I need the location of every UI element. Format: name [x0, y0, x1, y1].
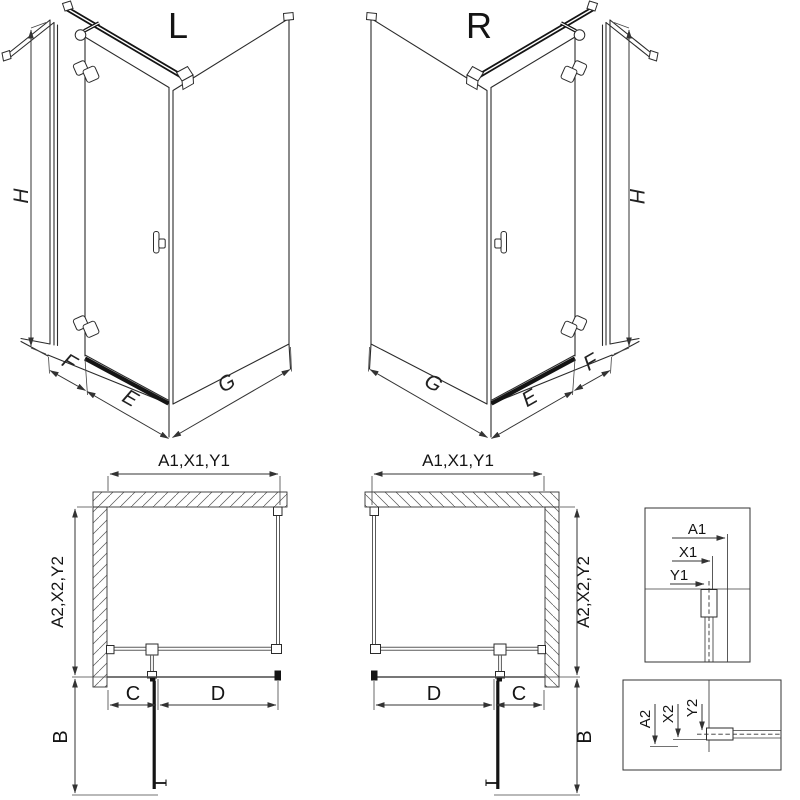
iso-left-dim-h: H: [10, 188, 33, 204]
diagram-canvas: L R H F E G H F E G A1,X1,Y1 A2,X2,Y2 C …: [0, 0, 800, 800]
plan-right-dim-top: A1,X1,Y1: [422, 451, 494, 470]
detail-bottom-dim-y2: Y2: [684, 699, 701, 717]
plan-right-dim-c: C: [512, 683, 526, 705]
detail-top-dim-a1: A1: [688, 521, 706, 538]
wall-profile-cap: [2, 51, 11, 62]
detail-top-dim-y1: Y1: [670, 567, 688, 584]
detail-bottom-dim-x2: X2: [660, 705, 677, 723]
version-label-left: L: [168, 5, 188, 46]
version-label-right: R: [466, 5, 492, 46]
plan-right-dim-side: A2,X2,Y2: [574, 556, 593, 628]
wall-top: [93, 492, 287, 507]
bar-wall-mount: [63, 1, 74, 11]
plan-left-dim-top: A1,X1,Y1: [158, 451, 230, 470]
wall-side: [545, 507, 559, 687]
plan-left-dim-b: B: [50, 730, 72, 743]
plan-right-dim-d: D: [427, 683, 441, 705]
plan-right-dim-b: B: [574, 730, 596, 743]
plan-left-dim-c: C: [126, 683, 140, 705]
plan-left-dim-d: D: [211, 683, 225, 705]
wall-side: [93, 507, 107, 687]
plan-left-dim-side: A2,X2,Y2: [48, 556, 67, 628]
bar-glass-connector: [75, 30, 86, 41]
panel-cap: [284, 13, 294, 21]
installation-diagram: L R H F E G H F E G A1,X1,Y1 A2,X2,Y2 C …: [0, 0, 800, 800]
detail-top-dim-x1: X1: [679, 544, 697, 561]
iso-right-dim-h: H: [625, 188, 648, 204]
detail-bottom-dim-a2: A2: [637, 710, 654, 728]
wall-top: [365, 492, 559, 507]
